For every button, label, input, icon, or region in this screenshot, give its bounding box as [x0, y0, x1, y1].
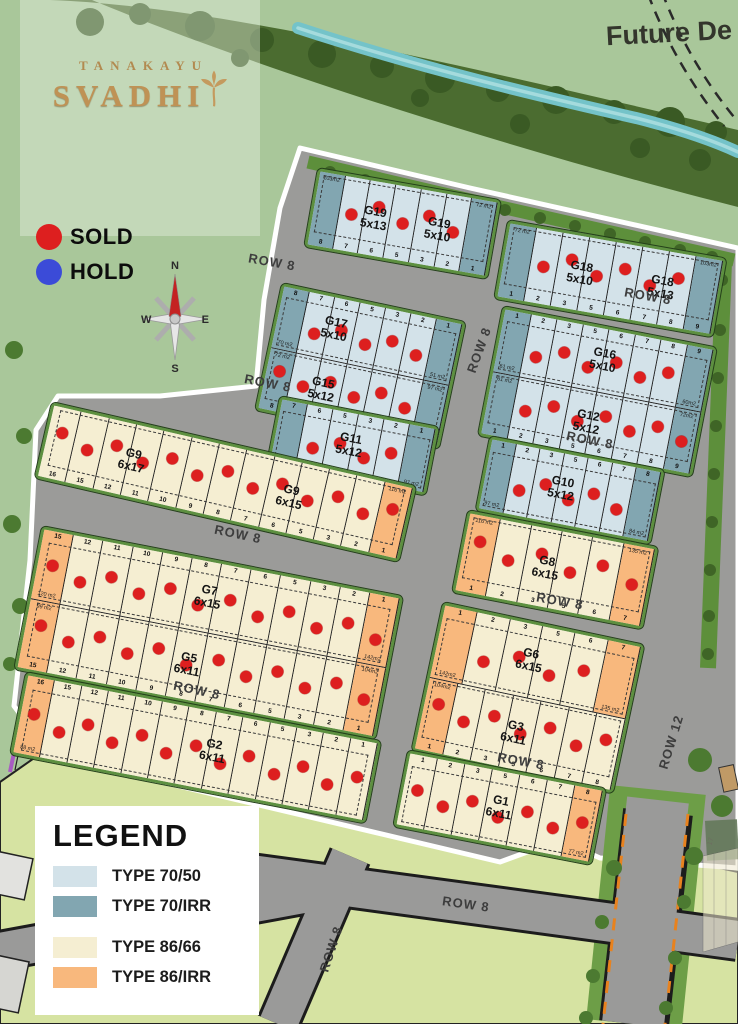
legend-item: TYPE 86/IRR	[53, 967, 243, 988]
street-label: ROW 8	[565, 428, 615, 452]
legend-swatch	[53, 866, 97, 887]
legend-item-label: TYPE 70/IRR	[112, 897, 211, 916]
legend-panel: LEGEND TYPE 70/50TYPE 70/IRRTYPE 86/66TY…	[35, 806, 259, 1015]
legend-item-label: TYPE 86/66	[112, 938, 201, 957]
street-label: ROW 8	[441, 893, 490, 914]
street-label: ROW 8	[317, 924, 346, 974]
legend-item: TYPE 86/66	[53, 937, 243, 958]
legend-items: TYPE 70/50TYPE 70/IRRTYPE 86/66TYPE 86/I…	[53, 866, 243, 988]
legend-swatch	[53, 937, 97, 958]
street-label: ROW 8	[172, 678, 222, 703]
legend-title: LEGEND	[53, 818, 243, 854]
legend-item: TYPE 70/IRR	[53, 896, 243, 917]
legend-item: TYPE 70/50	[53, 866, 243, 887]
street-label: ROW 8	[243, 371, 293, 395]
street-label: ROW 8	[496, 749, 546, 772]
street-label: ROW 12	[656, 713, 687, 771]
street-label: ROW 8	[535, 589, 585, 612]
street-label: ROW 8	[464, 325, 494, 375]
street-label: ROW 8	[247, 250, 297, 273]
street-label: ROW 8	[213, 522, 263, 547]
legend-item-label: TYPE 86/IRR	[112, 968, 211, 987]
legend-swatch	[53, 896, 97, 917]
street-label: ROW 8	[623, 284, 673, 307]
site-plan: TANAKAYU SVADHI Future De SOLD HOLD	[0, 0, 738, 1024]
legend-item-label: TYPE 70/50	[112, 867, 201, 886]
legend-swatch	[53, 967, 97, 988]
